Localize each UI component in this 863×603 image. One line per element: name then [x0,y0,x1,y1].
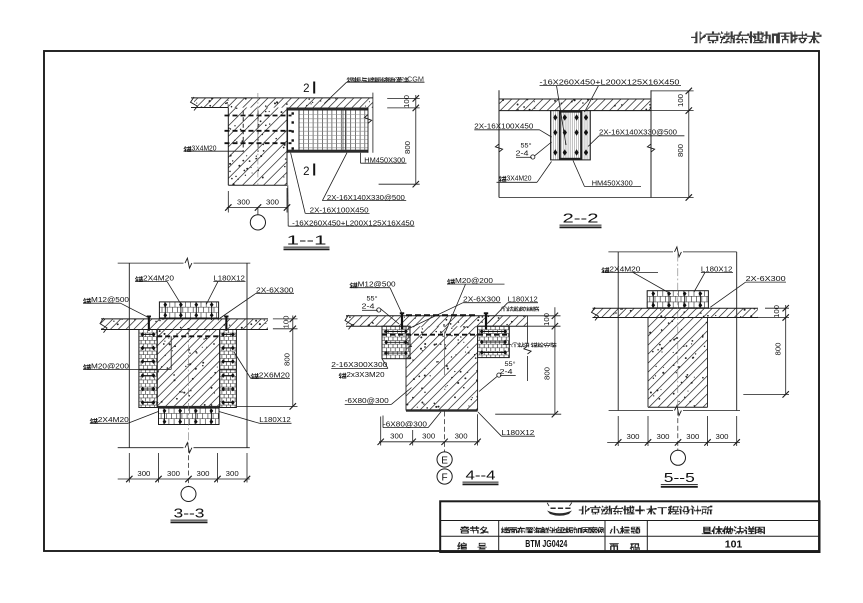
svg-text:300: 300 [226,469,239,478]
svg-text:800: 800 [773,343,782,356]
svg-text:800: 800 [282,353,291,366]
svg-text:2: 2 [303,166,309,178]
svg-text:BTM JG0424: BTM JG0424 [525,538,567,550]
svg-text:3X4M20: 3X4M20 [507,173,532,182]
svg-text:E: E [441,455,448,466]
svg-text:2: 2 [303,83,309,95]
svg-text:2X-6X300: 2X-6X300 [746,274,786,283]
svg-text:2-4: 2-4 [516,149,529,158]
svg-text:2-4: 2-4 [362,302,375,311]
svg-text:4--4: 4--4 [466,469,496,483]
svg-text:300: 300 [686,432,699,441]
svg-text:F: F [442,472,448,483]
svg-text:M12@500: M12@500 [91,295,129,304]
svg-text:2x3X3M20: 2x3X3M20 [347,370,385,379]
svg-text:101: 101 [725,539,743,551]
svg-text:800: 800 [403,141,412,154]
svg-text:-16X260X450+L200X125X16X450: -16X260X450+L200X125X16X450 [540,77,680,86]
svg-text:300: 300 [137,469,150,478]
svg-text:-6X80@300: -6X80@300 [383,419,427,428]
svg-text:300: 300 [266,197,279,206]
svg-text:300: 300 [422,432,435,441]
svg-text:100: 100 [542,313,551,326]
svg-text:1--1: 1--1 [287,234,327,248]
svg-text:100: 100 [772,305,781,318]
svg-text:3--3: 3--3 [174,507,205,521]
svg-text:100: 100 [402,95,411,108]
svg-text:300: 300 [390,432,403,441]
svg-text:-6X80@300: -6X80@300 [345,396,389,405]
svg-text:2X-16X140X330@500: 2X-16X140X330@500 [599,127,677,136]
svg-text:300: 300 [197,469,210,478]
svg-text:M20@200: M20@200 [455,276,493,285]
svg-text:2X6M20: 2X6M20 [259,370,290,379]
svg-text:300: 300 [237,197,250,206]
svg-text:300: 300 [167,469,180,478]
svg-text:L180X12: L180X12 [501,428,534,437]
svg-text:2X-16X100X450: 2X-16X100X450 [474,122,533,131]
svg-text:2X-6X300: 2X-6X300 [463,295,501,304]
svg-text:300: 300 [455,432,468,441]
svg-text:800: 800 [543,367,552,380]
svg-text:L180X12: L180X12 [259,415,291,424]
svg-text:2X4M20: 2X4M20 [98,415,129,424]
svg-text:L180X12: L180X12 [508,295,538,304]
svg-text:100: 100 [676,94,685,107]
svg-text:300: 300 [716,432,729,441]
svg-text:300: 300 [627,432,640,441]
svg-text:2--2: 2--2 [563,212,599,226]
svg-text:2-4: 2-4 [500,367,513,376]
svg-text:5--5: 5--5 [664,471,695,485]
svg-text:300: 300 [657,432,670,441]
svg-text:M12@500: M12@500 [358,280,396,289]
svg-text:2-16X300X300: 2-16X300X300 [331,360,387,369]
svg-text:100: 100 [281,316,290,329]
svg-text:800: 800 [676,144,685,157]
svg-text:HM450X300: HM450X300 [592,178,633,187]
